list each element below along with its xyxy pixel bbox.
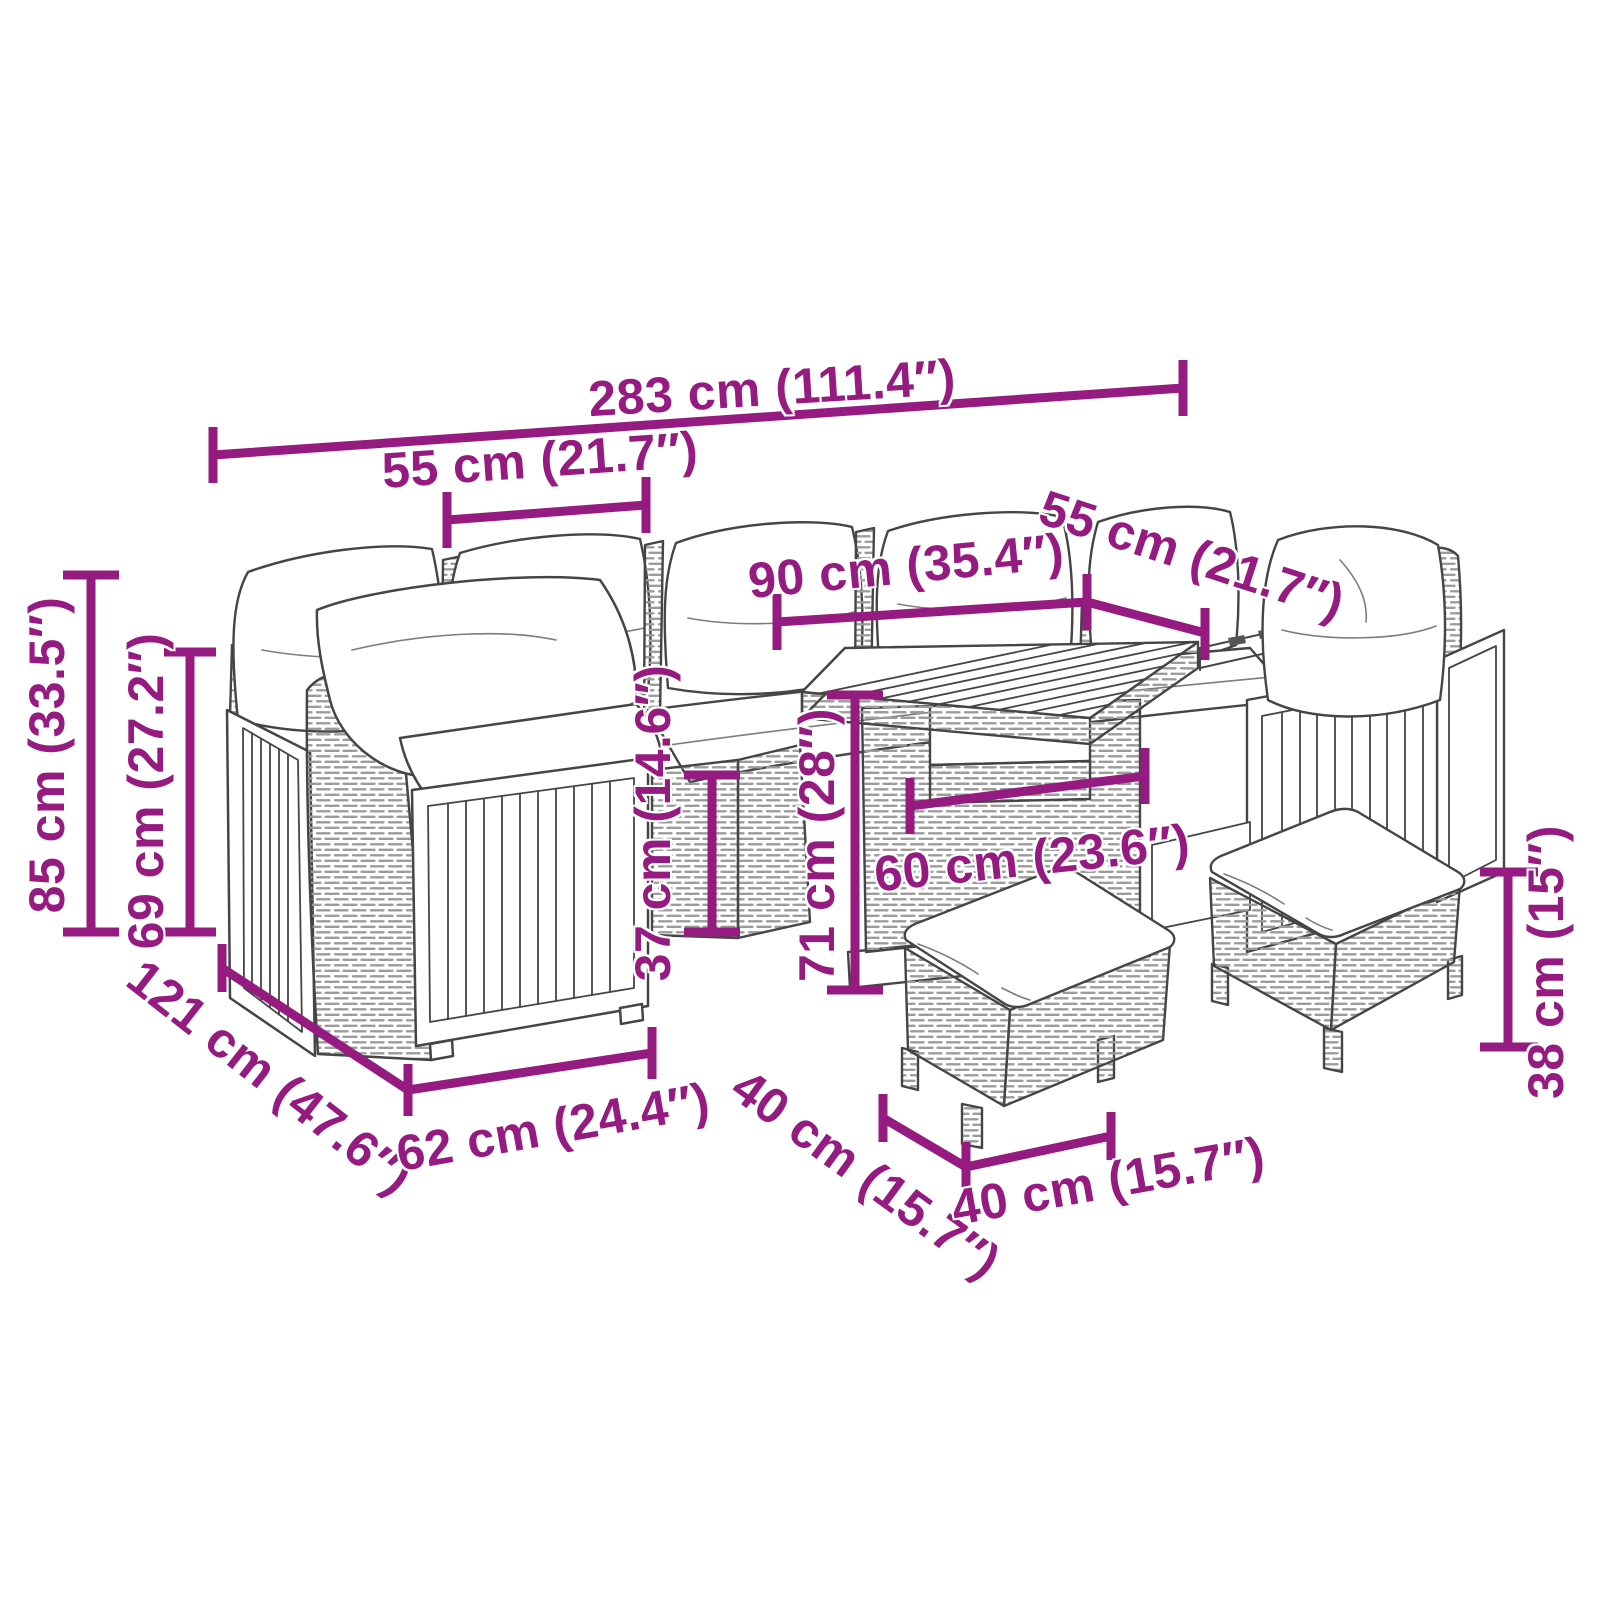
stool-leg [962,1104,982,1148]
back-pillow [1263,526,1445,716]
stool-leg [1324,1028,1342,1072]
dim-stool-height-label: 38 cm (15″) [1517,825,1575,1099]
dim-backrest-height-label: 69 cm (27.2″) [117,633,175,950]
foot [430,1040,453,1060]
dimension-diagram: 283 cm (111.4″) 55 cm (21.7″) 90 cm (35.… [0,0,1600,1600]
dim-table-height-label: 71 cm (28″) [788,708,846,982]
dim-seat-height-label: 37 cm (14.6″) [624,665,682,982]
dim-total-height-label: 85 cm (33.5″) [18,597,76,914]
foot [620,1004,643,1024]
